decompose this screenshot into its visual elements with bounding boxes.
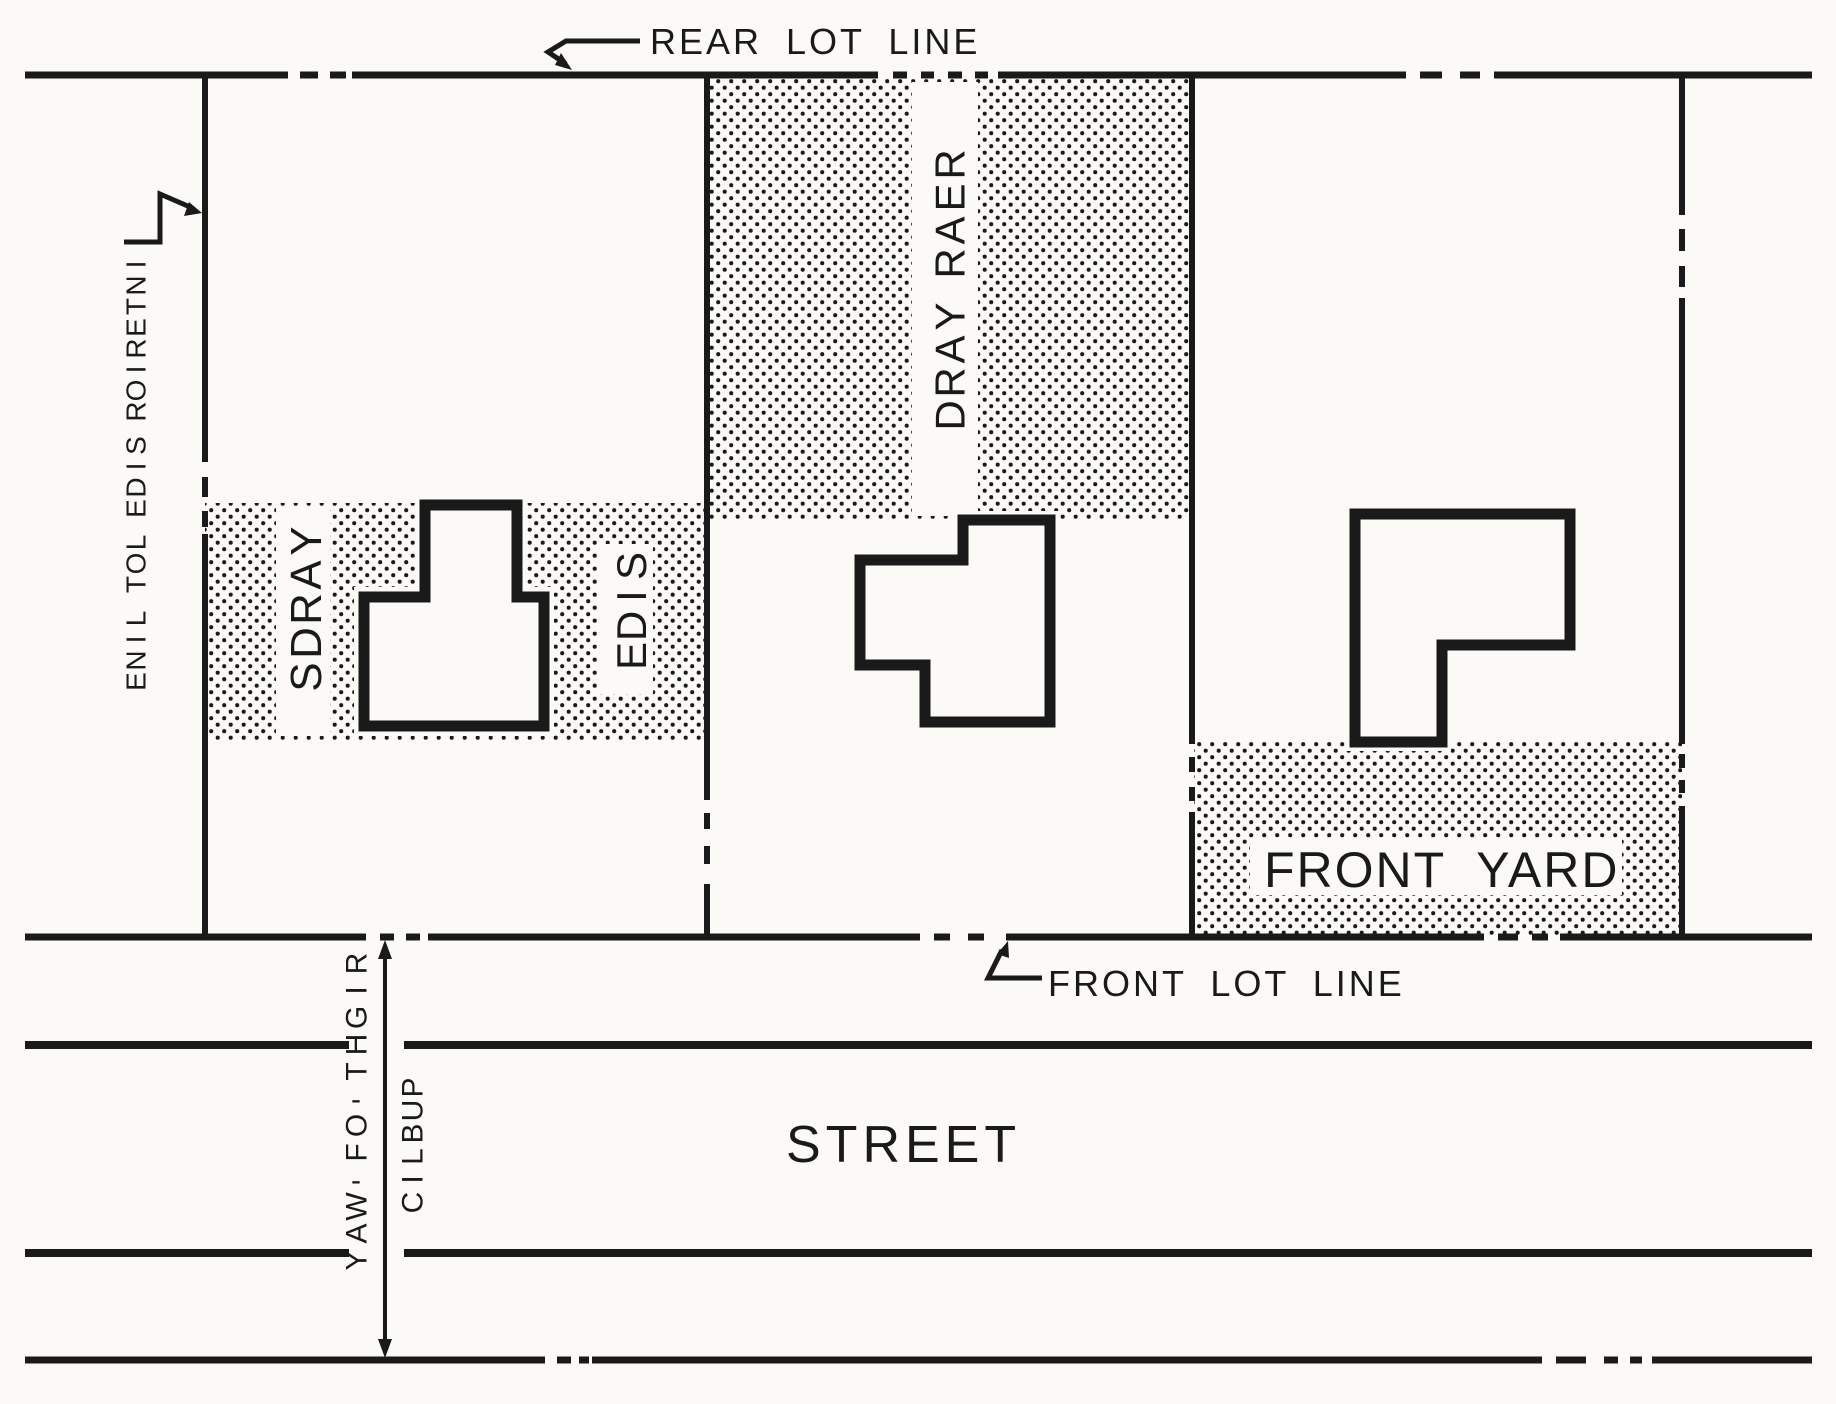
right-of-way-extent-arrow bbox=[378, 940, 392, 1358]
yards-label: YARDS bbox=[277, 524, 328, 694]
public-label: PUBLIC bbox=[393, 1076, 428, 1214]
interior-side-lot-line-leader bbox=[124, 194, 202, 242]
street-label: STREET bbox=[786, 1119, 1021, 1171]
side-label: SIDE bbox=[604, 551, 649, 671]
diagram-linework bbox=[0, 0, 1836, 1404]
rear-lot-line-label: REAR LOT LINE bbox=[650, 24, 980, 60]
house-footprint-right bbox=[1355, 514, 1570, 742]
interior-side-lot-line-label: INTERIORSIDELOTLINE bbox=[117, 254, 149, 692]
rear-yard-label: REARYARD bbox=[921, 148, 971, 432]
rear-lot-line-leader bbox=[548, 41, 640, 70]
front-lot-line-label: FRONT LOT LINE bbox=[1048, 966, 1405, 1002]
house-footprint-middle bbox=[860, 520, 1050, 722]
right-of-way-label: RIGHT-OF-WAY bbox=[336, 950, 377, 1274]
front-lot-line-leader bbox=[988, 941, 1042, 978]
zoning-lot-diagram: REAR LOT LINE FRONT LOT LINE STREET FRON… bbox=[0, 0, 1836, 1404]
front-yard-label: FRONT YARD bbox=[1264, 845, 1619, 895]
